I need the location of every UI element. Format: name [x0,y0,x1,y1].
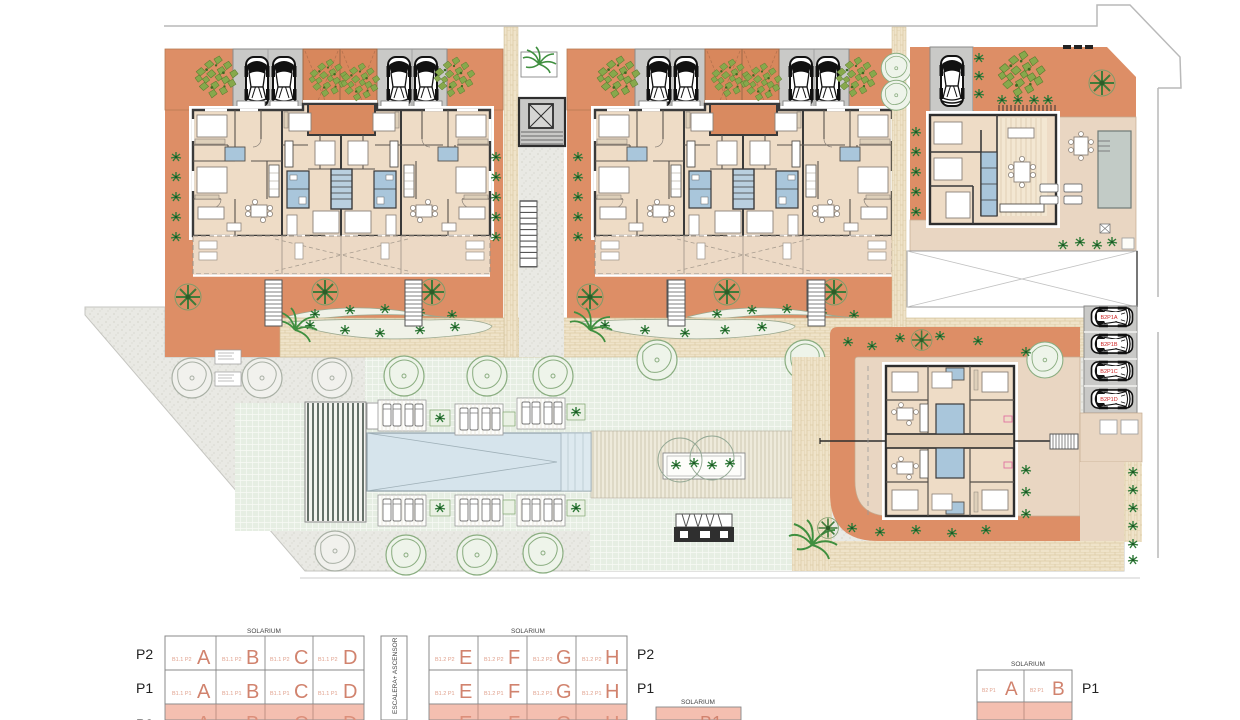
svg-text:G: G [556,713,572,720]
svg-text:G: G [556,681,572,703]
svg-text:B2P1B: B2P1B [1100,342,1117,348]
svg-text:P1: P1 [1082,680,1099,696]
svg-text:B1.1 P2: B1.1 P2 [318,657,338,663]
svg-text:B2P1A: B2P1A [1100,315,1117,321]
svg-text:A: A [197,713,211,720]
svg-text:P1: P1 [136,680,153,696]
svg-text:F: F [508,647,520,669]
svg-text:C: C [294,713,308,720]
svg-text:SOLARIUM: SOLARIUM [1011,661,1045,668]
svg-text:A: A [1005,679,1018,700]
svg-text:B2 P1: B2 P1 [982,688,996,694]
svg-text:B1.1 P1: B1.1 P1 [318,691,338,697]
svg-text:B1.1 P1: B1.1 P1 [270,691,290,697]
svg-text:B1.1 P2: B1.1 P2 [222,657,242,663]
svg-text:D: D [343,681,357,703]
svg-text:B1.1 P1: B1.1 P1 [172,691,192,697]
svg-text:A: A [197,647,211,669]
svg-text:G: G [556,647,572,669]
svg-text:H: H [605,713,619,720]
svg-text:F: F [508,713,520,720]
svg-text:C: C [294,681,308,703]
svg-text:B1.2 P2: B1.2 P2 [484,657,504,663]
svg-text:E: E [459,647,472,669]
svg-text:A: A [197,681,211,703]
svg-text:ESCALERA+ ASCENSOR: ESCALERA+ ASCENSOR [392,637,399,714]
svg-text:D: D [343,647,357,669]
svg-text:B2P1C: B2P1C [1100,369,1117,375]
svg-text:B2 P1: B2 P1 [1030,688,1044,694]
svg-text:E: E [459,681,472,703]
svg-text:B1.1 P1: B1.1 P1 [222,691,242,697]
svg-text:B1.2 P1: B1.2 P1 [484,691,504,697]
svg-text:C: C [294,647,308,669]
svg-text:E: E [459,713,472,720]
svg-text:H: H [605,681,619,703]
svg-text:B1.2 P2: B1.2 P2 [435,657,455,663]
svg-text:SOLARIUM: SOLARIUM [511,628,545,635]
svg-text:B1.2 P1: B1.2 P1 [582,691,602,697]
svg-text:H: H [605,647,619,669]
svg-text:P1: P1 [637,680,654,696]
svg-text:B: B [246,647,259,669]
svg-text:P2: P2 [637,646,654,662]
svg-text:B1.1 P2: B1.1 P2 [172,657,192,663]
svg-text:SOLARIUM: SOLARIUM [681,699,715,706]
svg-text:B1.1 P2: B1.1 P2 [270,657,290,663]
svg-text:B1.2 P1: B1.2 P1 [435,691,455,697]
svg-text:B1: B1 [700,713,722,720]
svg-text:D: D [343,713,357,720]
svg-text:B1.2 P2: B1.2 P2 [582,657,602,663]
svg-text:F: F [508,681,520,703]
svg-text:SOLARIUM: SOLARIUM [247,628,281,635]
svg-text:B: B [1052,679,1065,700]
svg-text:B1.2 P1: B1.2 P1 [533,691,553,697]
svg-text:B: B [246,713,259,720]
svg-text:B1.2 P2: B1.2 P2 [533,657,553,663]
svg-text:B2P1D: B2P1D [1100,397,1117,403]
svg-text:P0: P0 [136,716,153,720]
svg-text:B: B [246,681,259,703]
svg-text:P2: P2 [136,646,153,662]
